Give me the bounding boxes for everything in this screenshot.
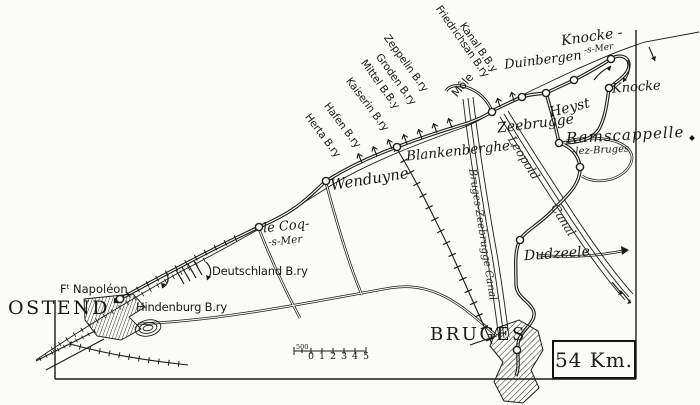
fort-napoleon-sup: t [67,283,70,291]
distance-value: 54 Km. [555,348,633,372]
label-knocke: Knocke [612,79,662,95]
fort-napoleon-name: Napoléon [73,282,128,296]
scale-tick-4: 4 [350,352,360,362]
distance-box: 54 Km. [552,340,636,379]
label-deutschland-battery: Deutschland B.ry [212,266,308,278]
scale-tick-3: 3 [339,352,349,362]
label-hindenburg-battery: Hindenburg B.ry [136,302,227,314]
scale-tick-5: 5 [361,352,371,362]
scale-tick-2: 2 [328,352,338,362]
coast-map: OSTEND BRUGES Ft Napoléon Hindenburg B.r… [0,0,700,405]
scale-tick-1: 1 [317,352,327,362]
label-bruges: BRUGES [430,326,527,344]
label-fort-napoleon: Ft Napoléon [60,284,128,296]
scale-tick-0: 0 [306,352,316,362]
scale-500-label: 500 [296,344,308,351]
label-ostend: OSTEND [8,299,110,318]
fort-napoleon-prefix: F [60,282,67,296]
